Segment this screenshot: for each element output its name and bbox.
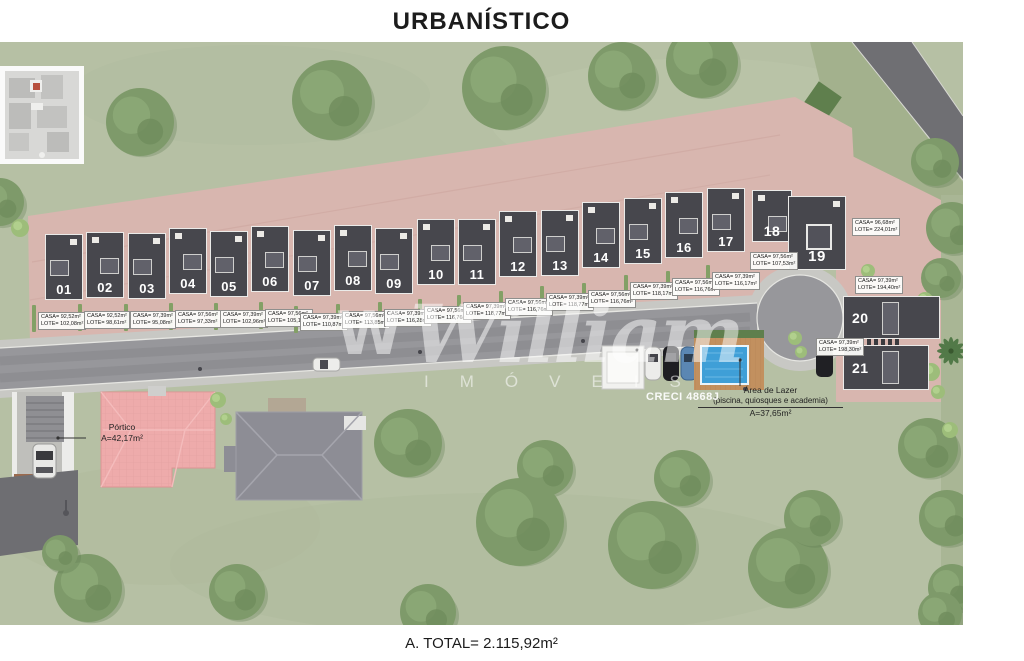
lot-lote-area: LOTE= 102,08m² [41,321,83,328]
lot-casa-area: CASA= 97,39m² [387,311,429,318]
roof-panel [133,259,152,275]
roof-panel [882,351,899,384]
lot-label-03: CASA= 97,39m²LOTE= 95,08m² [130,311,176,329]
lot-house-06: 06 [251,226,289,292]
bush [11,219,29,237]
lot-lote-area: LOTE= 118,77m² [549,302,591,309]
lot-number: 07 [294,278,330,293]
lot-lote-area: LOTE= 116,17m² [715,281,757,288]
lot-lote-area: LOTE= 95,08m² [133,320,173,327]
leisure-area-label: Área de Lazer (piscina, quiosques e acad… [698,385,843,419]
lot-casa-area: CASA= 97,39m² [303,315,345,322]
existing-house [224,398,366,500]
lot-number: 12 [500,259,536,274]
lot-house-01: 01 [45,234,83,300]
roof-panel [679,218,698,234]
roof-panel [380,254,399,270]
lot-house-07: 07 [293,230,331,296]
lot-house-09: 09 [375,228,413,294]
lot-house-12: 12 [499,211,537,277]
bush [942,422,958,438]
lot-house-08: 08 [334,225,372,291]
roof-panel [629,224,648,240]
lot-label-15: CASA= 97,39m²LOTE= 118,17m² [630,282,678,300]
bush [210,392,226,408]
lot-lote-area: LOTE= 116,76m² [591,299,633,306]
light-pole [63,510,69,516]
portico-area: A=42,17m² [86,433,158,444]
lot-house-02: 02 [86,232,124,298]
lot-lote-area: LOTE= 98,61m² [87,320,127,327]
bush [931,385,945,399]
lot-number: 06 [252,274,288,289]
lot-label-20: CASA= 97,39m²LOTE= 194,40m² [855,276,903,294]
portico-name: Pórtico [86,422,158,433]
lot-number: 09 [376,276,412,291]
lot-lote-area: LOTE= 97,33m² [178,319,218,326]
roof-panel [265,252,284,268]
lot-label-17: CASA= 97,39m²LOTE= 116,17m² [712,272,760,290]
lot-lote-area: LOTE= 107,53m² [753,261,795,268]
lot-number: 14 [583,250,619,265]
lot-label-11: CASA= 97,39m²LOTE= 118,77m² [463,302,511,320]
lot-number: 08 [335,273,371,288]
leisure-subtitle: (piscina, quiosques e academia) [698,396,843,408]
site-plan: 0102030405060708091011121314151617181920… [0,0,1024,661]
bush [220,413,232,425]
lot-casa-area: CASA= 97,39m² [549,295,591,302]
roof-panel [882,302,899,335]
lot-casa-area: CASA= 97,56m² [508,300,550,307]
lot-number: 05 [211,279,247,294]
lot-casa-area: CASA= 97,39m² [466,304,508,311]
lot-label-01: CASA= 92,52m²LOTE= 102,08m² [38,312,86,330]
lot-casa-area: CASA= 97,56m² [345,313,387,320]
roof-panel [513,237,532,253]
lot-house-11: 11 [458,219,496,285]
gym-building [602,346,644,389]
portico-label: Pórtico A=42,17m² [86,422,158,443]
total-area-label: A. TOTAL= 2.115,92m² [0,635,963,652]
lot-lote-area: LOTE= 198,30m² [819,347,861,354]
roof-panel [712,214,731,230]
lot-house-10: 10 [417,219,455,285]
roof-panel [50,260,69,276]
lot-casa-area: CASA= 92,52m² [87,313,127,320]
bush [788,331,802,345]
lot-label-02: CASA= 92,52m²LOTE= 98,61m² [84,311,130,329]
lot-lote-area: LOTE= 194,40m² [858,285,900,292]
bush [795,346,807,358]
lot-lote-area: LOTE= 116,76m² [508,307,550,314]
lot-casa-area: CASA= 97,39m² [819,340,861,347]
leisure-area-value: A=37,65m² [698,408,843,419]
roof-panel [463,245,482,261]
lot-number: 21 [852,360,869,376]
parked-cars [645,346,697,381]
lot-lote-area: LOTE= 113,85m² [345,320,387,327]
lot-casa-area: CASA= 97,39m² [858,278,900,285]
lot-number: 20 [852,310,869,326]
roof-panel [806,224,832,250]
lot-label-13: CASA= 97,39m²LOTE= 118,77m² [546,293,594,311]
lot-label-14: CASA= 97,56m²LOTE= 116,76m² [588,290,636,308]
location-inset-map [0,66,84,164]
lot-label-04: CASA= 97,56m²LOTE= 97,33m² [175,310,221,328]
hedge-strip [32,305,36,332]
roof-panel [215,257,234,273]
roof-panel [298,256,317,272]
lot-label-08: CASA= 97,56m²LOTE= 113,85m² [342,311,390,329]
lot-casa-area: CASA= 92,52m² [41,314,83,321]
lot-casa-area: CASA= 97,39m² [223,312,265,319]
roof-panel [596,228,615,244]
lot-number: 01 [46,282,82,297]
lot-number: 11 [459,267,495,282]
lot-house-04: 04 [169,228,207,294]
lot-label-21: CASA= 97,39m²LOTE= 198,30m² [816,338,864,356]
lot-house-15: 15 [624,198,662,264]
lot-casa-area: CASA= 97,39m² [633,284,675,291]
roof-panel [546,236,565,252]
lot-number: 03 [129,281,165,296]
lot-number: 10 [418,267,454,282]
lot-house-17: 17 [707,188,745,252]
page-title: URBANÍSTICO [0,8,963,36]
inset-site-marker [33,83,40,90]
lot-casa-area: CASA= 97,56m² [178,312,218,319]
lot-label-05: CASA= 97,39m²LOTE= 102,96m² [220,310,268,328]
roof-panel [431,245,450,261]
pool [701,346,748,384]
lot-number: 17 [708,234,744,249]
lot-house-03: 03 [128,233,166,299]
lot-house-18: 18 [752,190,792,242]
lot-number: 16 [666,240,702,255]
lot-house-05: 05 [210,231,248,297]
lot-lote-area: LOTE= 224,01m² [855,227,897,234]
lot-lote-area: LOTE= 116,76m² [675,287,717,294]
lot-label-07: CASA= 97,39m²LOTE= 110,87m² [300,313,348,331]
lot-lote-area: LOTE= 102,96m² [223,319,265,326]
roof-panel [183,254,202,270]
lot-number: 04 [170,276,206,291]
lot-house-16: 16 [665,192,703,258]
lot-lote-area: LOTE= 118,77m² [466,311,508,318]
lot-casa-area: CASA= 97,39m² [133,313,173,320]
lot-casa-area: CASA= 97,56m² [591,292,633,299]
roof-panel [100,258,119,274]
page: URBANÍSTICO [0,0,1024,661]
lot-house-14: 14 [582,202,620,268]
lot-casa-area: CASA= 97,56m² [753,254,795,261]
lot-house-20: 20 [843,296,940,339]
lot-number: 15 [625,246,661,261]
lot-casa-area: CASA= 97,39m² [715,274,757,281]
leisure-area [694,330,764,390]
lot-label-19: CASA= 96,68m²LOTE= 224,01m² [852,218,900,236]
lot-number: 13 [542,258,578,273]
lot-lote-area: LOTE= 116,28m² [387,318,429,325]
lot-number: 02 [87,280,123,295]
lot-number: 18 [753,223,791,239]
lot-lote-area: LOTE= 110,87m² [303,322,345,329]
lot-house-13: 13 [541,210,579,276]
roof-panel [348,251,367,267]
lot-casa-area: CASA= 97,56m² [675,280,717,287]
lot-label-18: CASA= 97,56m²LOTE= 107,53m² [750,252,798,270]
lot-casa-area: CASA= 96,68m² [855,220,897,227]
leisure-title: Área de Lazer [698,385,843,396]
lot-lote-area: LOTE= 118,17m² [633,291,675,298]
